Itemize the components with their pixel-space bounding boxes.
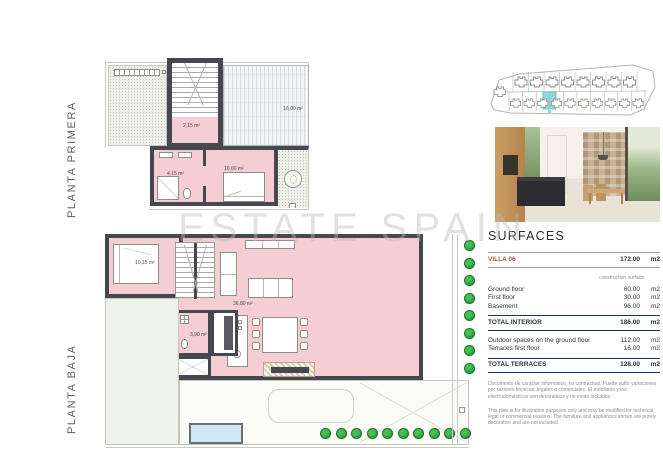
construction-surface-note: construction surface [488, 275, 660, 281]
dining-table-icon [262, 317, 298, 353]
bed-icon [223, 172, 265, 202]
partition-wall [203, 186, 206, 202]
bush-icon [336, 428, 347, 439]
row-unit: m2 [640, 337, 660, 346]
row-label: Outdoor spaces on the ground floor [488, 337, 604, 346]
row-unit: m2 [640, 319, 660, 328]
bush-icon [464, 328, 475, 339]
storage-room [175, 356, 211, 378]
chair-icon [252, 318, 260, 326]
utility-box-icon [459, 407, 465, 413]
sink-icon [178, 152, 192, 158]
washer-icon [180, 315, 189, 324]
floorplan-baja: 10,15 m² 36,80 m² [105, 228, 477, 450]
bush-icon [464, 293, 475, 304]
bush-row [320, 427, 470, 441]
garden-terrace-left [105, 298, 179, 445]
row-unit: m2 [640, 361, 660, 370]
room-bedroom-baja: 10,15 m² [105, 234, 183, 298]
chair-icon [252, 330, 260, 338]
chair-icon [300, 318, 308, 326]
plan-title-primera: PLANTA PRIMERA [66, 92, 78, 218]
car-outline [268, 389, 354, 423]
row-label: Terraces first floor [488, 345, 604, 354]
row-value: 30.00 [604, 294, 640, 303]
shower-icon [157, 176, 179, 200]
chair-icon [300, 330, 308, 338]
stairs-icon [172, 63, 218, 117]
bush-icon [367, 428, 378, 439]
watermark: ESTATE SPAIN [178, 206, 478, 251]
bush-icon [464, 363, 475, 374]
row-value: 186.00 [604, 319, 640, 328]
row-label: First floor [488, 294, 604, 303]
sofa-icon [220, 252, 237, 296]
villa-total-unit: m2 [640, 256, 660, 265]
table-row: Outdoor spaces on the ground floor 112.0… [488, 337, 660, 346]
room-area-label: 2,15 m² [183, 123, 200, 129]
bush-icon [464, 345, 475, 356]
room-area-label: 3,90 m² [190, 332, 207, 338]
outdoor-ground [179, 380, 469, 445]
room-stairs-landing: 2,15 m² [172, 117, 218, 143]
toilet-icon [181, 339, 188, 349]
row-label: TOTAL INTERIOR [488, 319, 604, 328]
row-unit: m2 [640, 303, 660, 312]
pendant-cord [603, 132, 604, 155]
kitchen-island [517, 177, 565, 206]
bush-icon [464, 275, 475, 286]
dining-table [587, 189, 625, 193]
sink-icon [159, 152, 173, 158]
room-terrace: 16,00 m² [223, 65, 309, 146]
side-patio [278, 146, 309, 208]
bush-icon [398, 428, 409, 439]
villa-name: VILLA 06 [488, 256, 604, 265]
row-unit: m2 [640, 286, 660, 295]
row-label: Ground floor [488, 286, 604, 295]
roof-vent-icon [162, 70, 166, 74]
row-label: TOTAL TERRACES [488, 361, 604, 370]
room-area-label: 36,80 m² [233, 301, 253, 307]
bush-icon [382, 428, 393, 439]
tree-icon [284, 170, 302, 188]
bush-icon [444, 428, 455, 439]
row-value: 128.00 [604, 361, 640, 370]
sofa-icon [248, 278, 293, 298]
room-area-label: 10,15 m² [135, 260, 155, 266]
bush-icon [413, 428, 424, 439]
table-row: Ground floor 60.00 m2 [488, 286, 660, 295]
gravel-roof [108, 65, 167, 146]
bush-column [463, 240, 477, 375]
total-interior-row: TOTAL INTERIOR 186.00 m2 [488, 315, 660, 331]
surfaces-panel: SURFACES VILLA 06 172.00 m2 construction… [488, 229, 660, 427]
stair-core: 2,15 m² [167, 58, 223, 148]
chair-icon [252, 342, 260, 350]
partition-wall [203, 150, 206, 166]
laundry-closet [211, 310, 238, 356]
chair-icon [300, 342, 308, 350]
row-value: 16.00 [604, 345, 640, 354]
bush-icon [460, 428, 471, 439]
bedroom-suite: 4,15 m² 10,00 m² [150, 146, 278, 206]
bush-icon [464, 258, 475, 269]
row-unit: m2 [640, 294, 660, 303]
disclaimer-es: Documento de carácter informativo, no co… [488, 381, 660, 400]
tv-unit [263, 362, 315, 377]
solar-panel-icon [114, 69, 160, 76]
pendant-lamp-icon [598, 155, 608, 160]
appliance-icon [224, 316, 233, 350]
brochure-page: PLANTA PRIMERA PLANTA BAJA 2,15 m² 16,00… [0, 0, 663, 466]
room-bathroom-baja: 3,90 m² [175, 310, 211, 356]
disclaimer-en: This plan is for illustration purposes o… [488, 408, 660, 427]
bush-icon [320, 428, 331, 439]
plan-title-baja: PLANTA BAJA [66, 330, 78, 434]
floorplan-primera: 2,15 m² 16,00 m² 4,15 m² 10,00 m² [105, 58, 311, 212]
toilet-icon [183, 188, 191, 199]
total-terraces-row: TOTAL TERRACES 128.00 m2 [488, 358, 660, 374]
row-label: Basement [488, 303, 604, 312]
row-value: 112.00 [604, 337, 640, 346]
pool [189, 423, 243, 444]
villa-total-value: 172.00 [604, 256, 640, 265]
row-value: 96.00 [604, 303, 640, 312]
villa-row: VILLA 06 172.00 m2 [488, 252, 660, 268]
bush-icon [351, 428, 362, 439]
site-plan-svg [487, 58, 659, 126]
row-unit: m2 [640, 345, 660, 354]
row-value: 60.00 [604, 286, 640, 295]
garden-window [628, 127, 660, 201]
room-area-label: 16,00 m² [283, 106, 303, 112]
table-row: Basement 96.00 m2 [488, 303, 660, 312]
dining-chair [583, 185, 593, 201]
oven-niche [503, 155, 518, 175]
table-row: First floor 30.00 m2 [488, 294, 660, 303]
table-row: Terraces first floor 16.00 m2 [488, 345, 660, 354]
bush-icon [429, 428, 440, 439]
bush-icon [464, 310, 475, 321]
